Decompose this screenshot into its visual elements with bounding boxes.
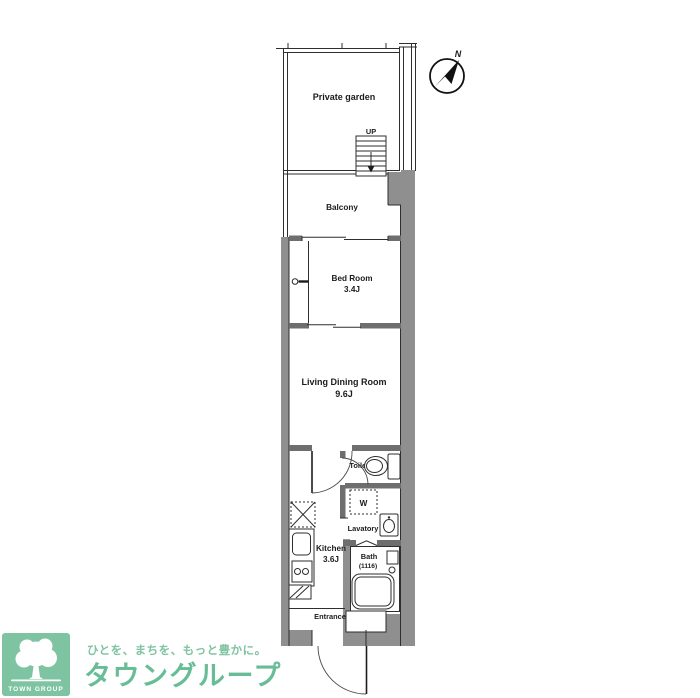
bathtub-icon: [352, 574, 394, 609]
entrance: Entrance: [289, 609, 386, 695]
washing-machine-icon: W: [350, 490, 377, 514]
bath-size: (1116): [359, 563, 377, 570]
closet-hanger-icon: [292, 279, 308, 285]
toilet-room: Toilet: [340, 451, 401, 518]
lavatory-label: Lavatory: [348, 524, 380, 533]
sink-icon: [380, 514, 398, 536]
folding-door-icon: [356, 541, 377, 546]
staircase: UP: [356, 127, 386, 176]
town-group-logo: TOWN GROUP: [2, 633, 70, 696]
garden-label: Private garden: [313, 92, 376, 102]
ldk-size: 9.6J: [335, 389, 353, 399]
lavatory: W Lavatory: [340, 490, 398, 540]
bedroom-size: 3.4J: [344, 285, 360, 294]
entrance-step: [346, 611, 386, 632]
north-compass-icon: N: [430, 49, 464, 93]
living-dining-room: Living Dining Room 9.6J: [289, 377, 401, 493]
stairs-down-arrow-icon: [368, 166, 375, 173]
kitchen-counter: [289, 529, 314, 586]
balcony: Balcony: [289, 203, 401, 241]
bedroom-label: Bed Room: [332, 274, 373, 283]
entrance-label: Entrance: [314, 612, 346, 621]
bath-label: Bath: [361, 552, 378, 561]
refrigerator-space-icon: [291, 502, 315, 527]
tree-icon: [2, 633, 70, 683]
washer-label: W: [360, 499, 368, 508]
stove-icon: [292, 561, 312, 582]
floorplan-page: Private garden UP N: [0, 0, 700, 698]
bedroom: Bed Room 3.4J: [289, 241, 401, 329]
brand-name: タウングループ: [84, 654, 282, 693]
pipe-space-icon: [289, 585, 311, 599]
floor-plan: Private garden UP N: [0, 0, 700, 698]
kitchen-label: Kitchen: [316, 544, 346, 553]
kitchen-size: 3.6J: [323, 555, 339, 564]
bath-faucet-icon: [387, 551, 398, 573]
bathroom: Bath (1116): [343, 540, 401, 612]
stairs-up-label: UP: [366, 127, 376, 136]
kitchen-sink-icon: [293, 533, 311, 555]
north-label: N: [455, 49, 462, 59]
logo-badge-text: TOWN GROUP: [2, 686, 70, 693]
front-door-arc: [318, 646, 366, 694]
balcony-label: Balcony: [326, 203, 358, 212]
ldk-label: Living Dining Room: [302, 377, 387, 387]
toilet-fixture-icon: [365, 454, 401, 479]
kitchen: Kitchen 3.6J: [289, 502, 346, 599]
